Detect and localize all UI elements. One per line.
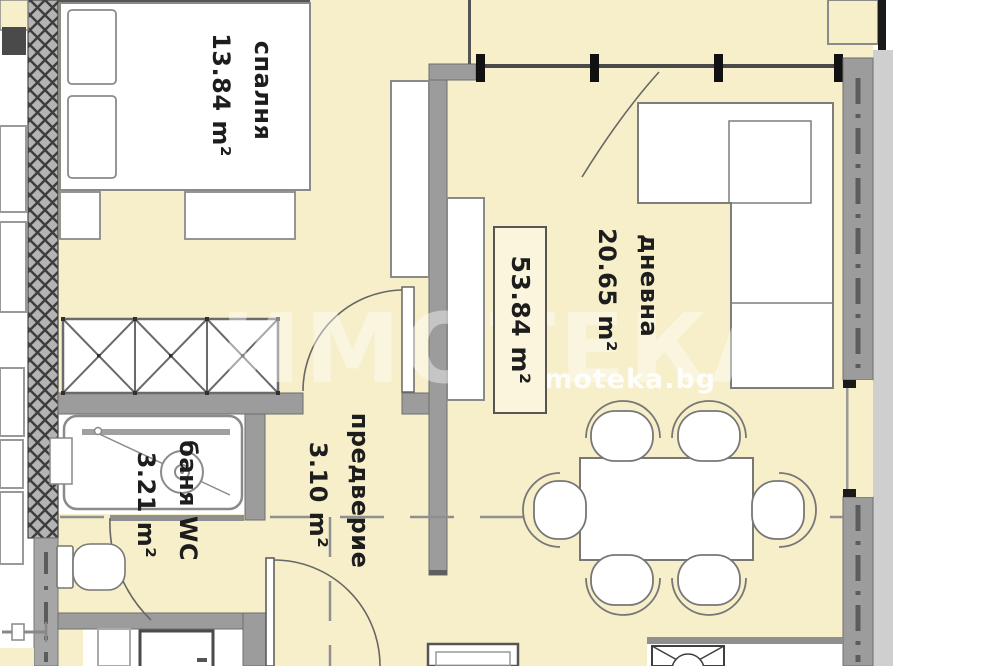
- hall-area: 3.10 m²: [304, 442, 332, 549]
- bedroom-area: 13.84 m²: [207, 33, 235, 157]
- window-tick-3: [714, 54, 723, 82]
- left-bottom-floor-sliver: [0, 648, 34, 666]
- bath-inlet-box: [50, 438, 72, 484]
- living-name: дневна: [635, 234, 663, 337]
- bottom-right-room-wall: [647, 637, 843, 644]
- floor-plan-page: ИМОТЕКА imoteka.bg спалня 13.84 m² дневн…: [0, 0, 1000, 666]
- balcony-column: [828, 0, 878, 44]
- dining-table: [580, 458, 753, 560]
- left-edge-box-1: [0, 126, 26, 212]
- total-area-text: 53.84 m²: [506, 256, 535, 385]
- toilet-bowl: [73, 544, 125, 590]
- chair-bottom-2: [678, 555, 740, 605]
- floor-plan-drawing: ИМОТЕКА imoteka.bg спалня 13.84 m² дневн…: [0, 0, 1000, 666]
- right-window-tick-top: [843, 380, 856, 388]
- bottom-left-unit-1: [98, 629, 130, 666]
- bath-name: баня WC: [174, 440, 202, 561]
- bedroom-name: спалня: [249, 41, 277, 141]
- window-tick-2: [590, 54, 599, 82]
- kitchen-sink: [652, 646, 724, 666]
- right-window-glass-line: [846, 380, 849, 497]
- entry-wall-stub: [243, 613, 266, 666]
- bed-bench: [185, 192, 295, 239]
- shower-hook: [95, 428, 102, 435]
- bottom-left-unit-detail: [197, 658, 207, 662]
- toilet-tank: [57, 546, 73, 588]
- pillow-2: [68, 96, 116, 178]
- pillow-1: [68, 10, 116, 84]
- bathtub-grab-bar: [82, 429, 230, 435]
- chair-top-1: [591, 411, 653, 461]
- bathroom-east-wall: [245, 414, 265, 520]
- total-area-label: 53.84 m²: [494, 227, 546, 413]
- left-edge-box-4: [0, 440, 23, 488]
- left-edge-box-3: [0, 368, 24, 436]
- chair-left: [534, 481, 586, 539]
- outer-wall-strip: [873, 50, 893, 666]
- left-edge-box-5: [0, 492, 23, 564]
- left-edge-fixture-box: [12, 624, 24, 640]
- left-edge-box-top: [0, 0, 28, 30]
- central-wall-end-cap: [429, 570, 447, 575]
- chair-top-2: [678, 411, 740, 461]
- living-window-wall-line: [476, 64, 843, 68]
- watermark-small-text: imoteka.bg: [534, 364, 716, 395]
- hall-name: предверие: [346, 413, 374, 569]
- chair-right: [752, 481, 804, 539]
- left-edge-box-2: [0, 222, 26, 312]
- balcony-edge-black-line: [878, 0, 886, 50]
- living-area: 20.65 m²: [593, 228, 621, 352]
- window-tick-1: [476, 54, 485, 82]
- bathroom-south-wall: [58, 613, 243, 629]
- bedroom-cabinet: [391, 81, 429, 277]
- central-wall-top-stub: [429, 64, 476, 80]
- right-window-tick-bottom: [843, 489, 856, 497]
- total-area-value: 53.84 m²: [506, 256, 535, 385]
- left-edge-dark-block: [2, 27, 26, 55]
- bedroom-balcony-divider-line: [468, 0, 471, 64]
- bath-area: 3.21 m²: [132, 452, 160, 559]
- bottom-center-counter: [428, 644, 518, 666]
- window-tick-4: [834, 54, 843, 82]
- entry-door-leaf: [266, 558, 274, 666]
- nightstand: [60, 192, 100, 239]
- chair-bottom-1: [591, 555, 653, 605]
